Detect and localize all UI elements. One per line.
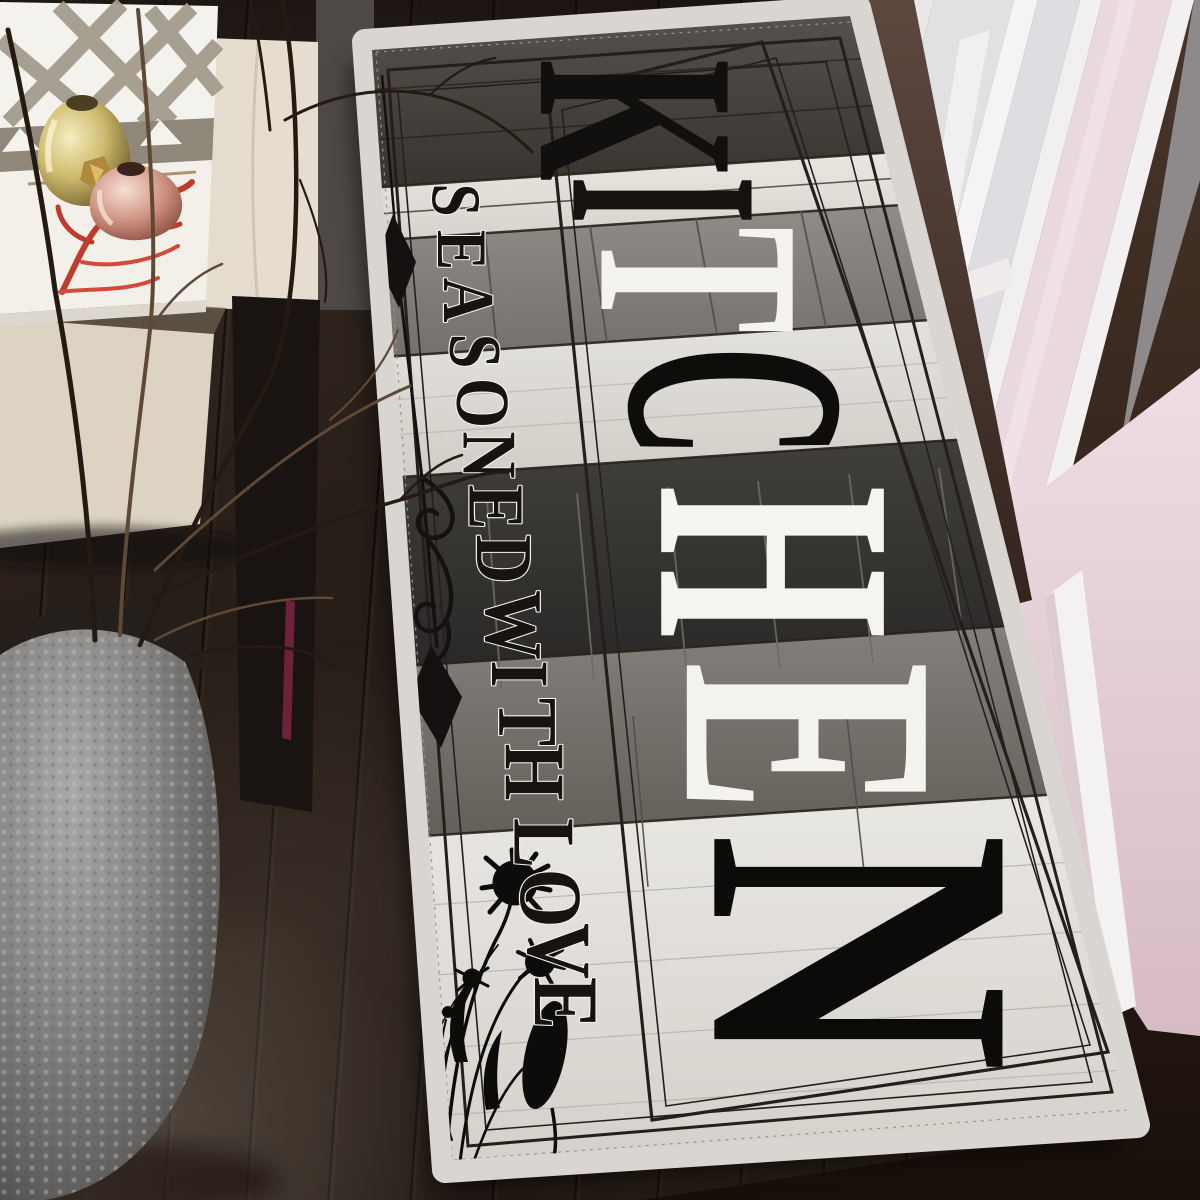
rug-tagline-letter-L: L: [495, 818, 593, 868]
rug-tagline-letter-E: E: [514, 977, 615, 1029]
ottoman-cushion: [0, 318, 214, 548]
copper-vase-opening: [117, 162, 145, 176]
rug-tagline-letter-S: S: [434, 334, 516, 369]
rug-tagline-letter-S: S: [416, 183, 494, 216]
gold-vase-opening: [66, 95, 98, 111]
rug-tagline-letter-E: E: [452, 485, 539, 530]
rug-letter-E: E: [607, 662, 1012, 813]
rug-tagline-letter-O: O: [501, 869, 600, 928]
rug-letter-C: C: [562, 345, 911, 459]
rug-letter-T: T: [538, 226, 861, 333]
rug-tagline-letter-I: I: [474, 660, 567, 687]
rug-letter-K: K: [479, 59, 795, 181]
rug-tagline-letter-O: O: [440, 378, 524, 428]
rug-tagline-letter-A: A: [428, 278, 509, 323]
scene-graphic: KITCHEN SEASONEDWITHLOVE: [0, 0, 1200, 1200]
photo-stage: KITCHEN SEASONED WITH LOVE: [0, 0, 1200, 1200]
rug-tagline-letter-V: V: [508, 923, 608, 979]
rug-letter-N: N: [618, 833, 1106, 1071]
planter-pot: [0, 600, 280, 1200]
rug-tagline-letter-E: E: [422, 230, 501, 270]
rug-tagline-letter-W: W: [468, 590, 559, 660]
rug-tagline-letter-H: H: [487, 744, 582, 801]
rug-tagline-letter-D: D: [459, 534, 547, 583]
bench-leg: [232, 296, 320, 812]
rug-letter-I: I: [514, 176, 816, 224]
rug-letter-H: H: [587, 485, 964, 638]
rug-tagline-letter-T: T: [480, 698, 574, 746]
